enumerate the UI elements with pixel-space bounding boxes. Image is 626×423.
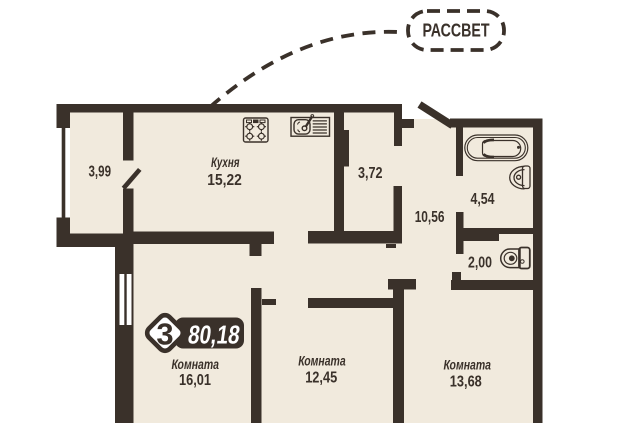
svg-text:Комната: Комната bbox=[298, 353, 346, 369]
svg-text:4,54: 4,54 bbox=[471, 191, 495, 208]
svg-text:Комната: Комната bbox=[444, 356, 492, 372]
svg-text:2,00: 2,00 bbox=[468, 255, 492, 272]
svg-text:3,72: 3,72 bbox=[358, 165, 383, 182]
svg-text:Кухня: Кухня bbox=[211, 154, 240, 170]
svg-text:13,68: 13,68 bbox=[450, 374, 482, 391]
svg-text:80,18: 80,18 bbox=[186, 320, 242, 350]
svg-text:Комната: Комната bbox=[172, 356, 220, 372]
svg-text:12,45: 12,45 bbox=[305, 370, 337, 387]
svg-text:15,22: 15,22 bbox=[207, 172, 242, 189]
svg-text:3: 3 bbox=[156, 317, 173, 352]
svg-text:16,01: 16,01 bbox=[179, 372, 211, 389]
svg-text:РАССВЕТ: РАССВЕТ bbox=[423, 21, 490, 41]
svg-text:3,99: 3,99 bbox=[89, 164, 112, 181]
svg-text:10,56: 10,56 bbox=[415, 209, 445, 226]
